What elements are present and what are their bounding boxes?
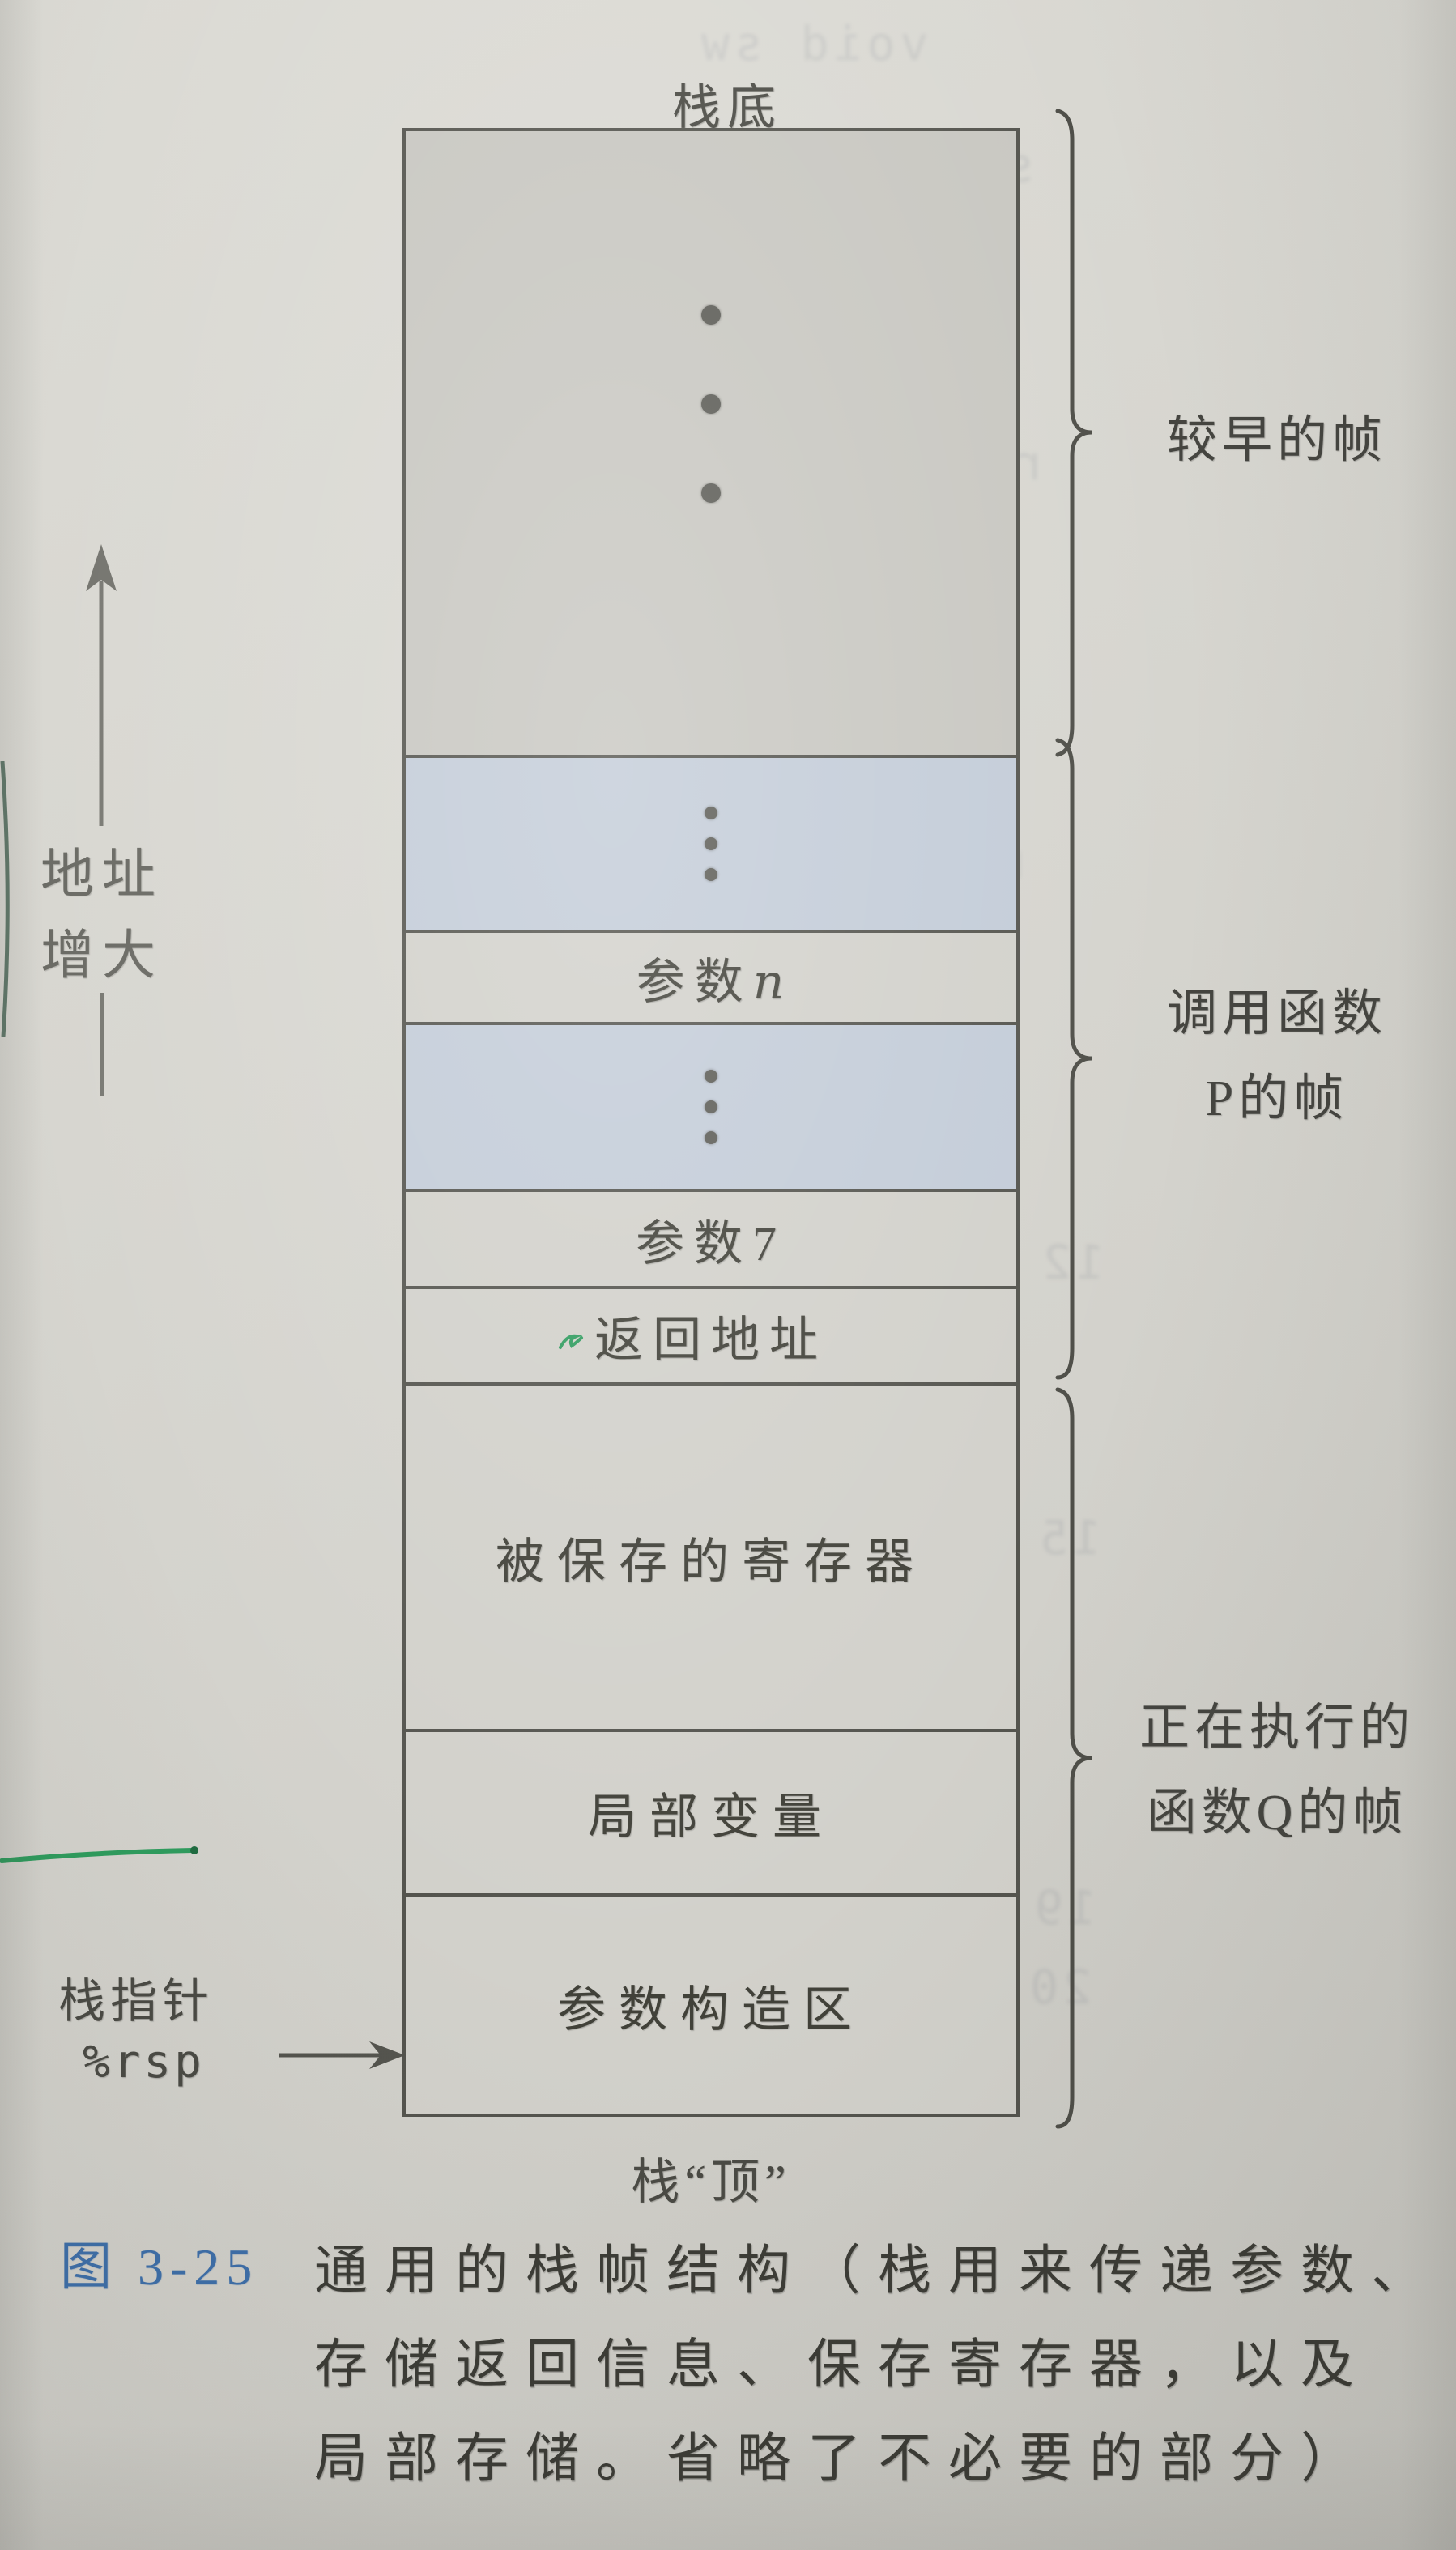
- current-frame-label-line2: 函数Q的帧: [1111, 1771, 1443, 1856]
- ellipsis-dots: [705, 1061, 717, 1153]
- brace-earlier-frames: [1053, 108, 1098, 758]
- stack-pointer-register: %rsp: [83, 2036, 205, 2088]
- stack-pointer-label: 栈指针: [58, 1963, 214, 2031]
- earlier-frames-label: 较早的帧: [1111, 398, 1443, 483]
- saved-registers-label: 被保存的寄存器: [496, 1522, 926, 1593]
- stack-pointer-arrow-icon: [279, 2036, 407, 2075]
- current-frame-label: 正在执行的 函数Q的帧: [1111, 1686, 1443, 1856]
- address-arrow-tail: [100, 993, 104, 1096]
- green-pen-edge-arc: [0, 761, 18, 1037]
- caption-line-1: 通用的栈帧结构（栈用来传递参数、: [314, 2227, 1441, 2305]
- ellipsis-dots: [701, 270, 721, 538]
- bleed-through-text: void sw: [696, 16, 928, 71]
- book-page-photo: void sw switcher cmpq js jmp section rod…: [0, 0, 1456, 2550]
- stack-frame-diagram: 参数n 参数7 返回地址 被保存的寄存器 局部变量 参数构造区: [402, 128, 1020, 2117]
- argument-build-area-label: 参数构造区: [557, 1970, 865, 2041]
- caller-frame-label: 调用函数 P的帧: [1111, 972, 1443, 1142]
- region-args-above-n: [406, 755, 1016, 930]
- caption-line-2: 存储返回信息、保存寄存器，以及: [314, 2321, 1371, 2399]
- brace-current-frame: [1053, 1386, 1098, 2130]
- parameter-n-label: 参数: [636, 956, 753, 1009]
- current-frame-label-line1: 正在执行的: [1111, 1686, 1443, 1771]
- region-saved-registers: 被保存的寄存器: [406, 1382, 1016, 1729]
- region-local-variables: 局部变量: [406, 1729, 1016, 1893]
- brace-caller-frame: [1053, 737, 1098, 1381]
- return-address-label: 返回地址: [594, 1301, 828, 1371]
- region-parameter-7: 参数7: [406, 1189, 1016, 1286]
- address-increase-arrow-icon: [79, 544, 125, 828]
- region-args-middle: [406, 1022, 1016, 1189]
- caller-frame-label-line1: 调用函数: [1111, 972, 1443, 1057]
- parameter-7-label: 参数7: [636, 1204, 786, 1275]
- region-earlier-frames: [406, 131, 1016, 755]
- caption-line-3: 局部存储。省略了不必要的部分）: [314, 2415, 1371, 2493]
- stack-top-label: 栈“顶”: [386, 2143, 1036, 2213]
- ellipsis-dots: [705, 798, 717, 890]
- local-variables-label: 局部变量: [588, 1777, 834, 1848]
- region-parameter-n: 参数n: [406, 930, 1016, 1022]
- green-pen-stroke: [0, 1828, 211, 1877]
- address-label-line2: 增大: [40, 912, 164, 990]
- parameter-n-var: n: [753, 954, 786, 1011]
- figure-number-label: 图 3-25: [60, 2225, 258, 2300]
- address-label-line1: 地址: [40, 831, 164, 909]
- region-argument-build-area: 参数构造区: [406, 1893, 1016, 2114]
- region-return-address: 返回地址: [406, 1286, 1016, 1382]
- caller-frame-label-line2: P的帧: [1111, 1057, 1443, 1142]
